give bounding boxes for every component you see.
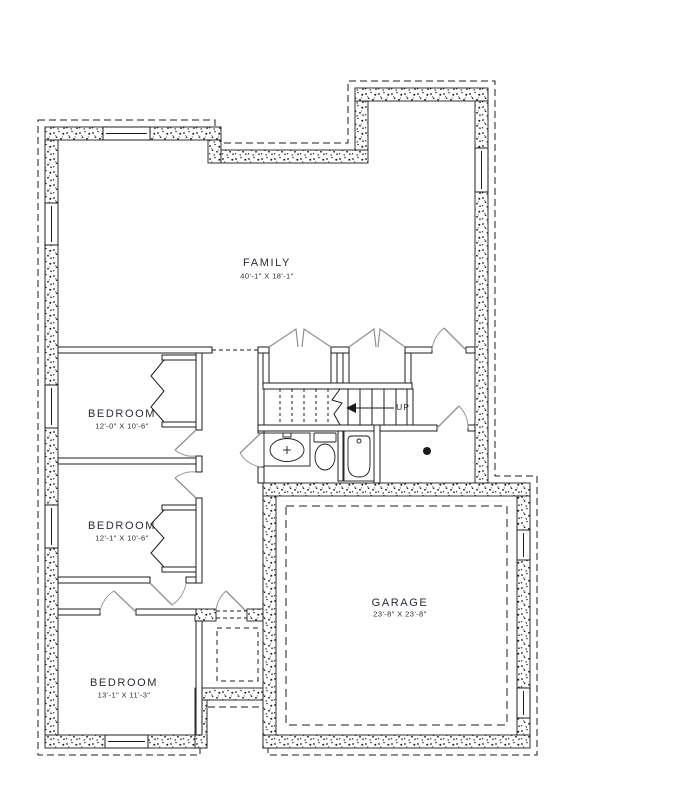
support-post [423,447,431,455]
window-top [103,127,150,140]
floorplan-drawing [0,0,691,789]
bathtub [344,431,374,481]
room-dims-family: 40'-1" X 18'-1" [240,272,293,281]
stair-up-label: UP [396,402,410,412]
room-label-bedroom1: BEDROOM [88,408,156,420]
bedroom2-door [175,472,196,498]
stair-treads-upper-dashed [280,389,328,425]
toilet [314,433,336,470]
room-label-bedroom2: BEDROOM [88,520,156,532]
staircase [280,389,396,425]
window-left-family [45,203,58,245]
closet2-double-doors [349,329,405,347]
room-dims-bedroom3: 13'-1" X 11'-3" [98,691,151,700]
window-left-bedroom1 [45,385,58,428]
room-dims-bedroom1: 12'-0" X 10'-6" [95,422,148,431]
window-left-bedroom2 [45,505,58,548]
room-label-family: FAMILY [243,257,291,269]
window-garage-right-2 [517,688,530,718]
bifold-bedroom2-closet [151,510,164,567]
closet1-double-doors [269,329,331,347]
window-right-wing [475,148,488,192]
window-garage-right-1 [517,530,530,560]
bathroom-fixtures [264,431,374,481]
room-label-bedroom3: BEDROOM [90,677,158,689]
hall-corridor-door [150,583,186,605]
family-room-door [432,328,466,350]
room-dims-bedroom2: 12'-1" X 10'-6" [95,534,148,543]
stoop-door [216,591,247,612]
stoop-slab-dashed [217,628,258,681]
bathroom-door [240,433,261,467]
room-dims-garage: 23'-8" X 23'-8" [373,610,426,619]
vanity-sink [264,433,310,466]
landing-door [437,406,468,428]
bedroom1-door [175,430,196,456]
bedroom3-door [100,591,136,612]
floor-plan: FAMILY 40'-1" X 18'-1" BEDROOM 12'-0" X … [0,0,691,789]
room-label-garage: GARAGE [372,597,429,609]
stair-break-line [332,389,342,425]
window-bedroom3-bottom [105,735,148,748]
